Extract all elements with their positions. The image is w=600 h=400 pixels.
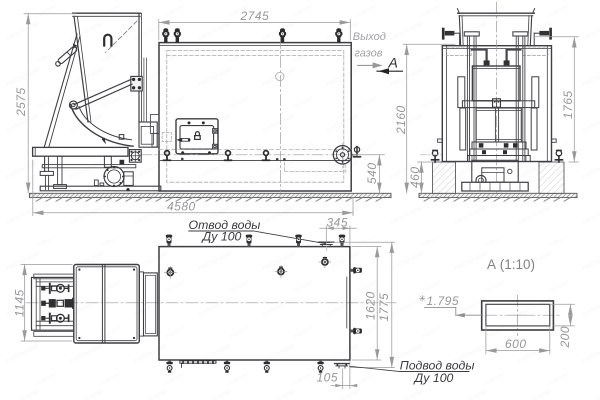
svg-text:1145: 1145 — [13, 289, 27, 317]
svg-text:✳: ✳ — [419, 294, 427, 304]
svg-text:1765: 1765 — [561, 90, 575, 119]
svg-text:газов: газов — [355, 47, 383, 59]
svg-text:345: 345 — [327, 216, 349, 230]
svg-text:Выход: Выход — [353, 31, 386, 43]
svg-text:600: 600 — [505, 337, 527, 351]
svg-text:1620: 1620 — [363, 291, 377, 320]
svg-text:Ду 100: Ду 100 — [413, 371, 454, 385]
svg-text:А (1:10): А (1:10) — [487, 257, 535, 272]
svg-text:2575: 2575 — [14, 87, 28, 117]
svg-text:540: 540 — [365, 162, 379, 184]
svg-text:1.795: 1.795 — [427, 294, 460, 308]
svg-text:105: 105 — [317, 371, 339, 385]
svg-text:2160: 2160 — [394, 105, 408, 135]
svg-text:200: 200 — [558, 326, 572, 349]
svg-text:4580: 4580 — [167, 199, 196, 213]
svg-text:2745: 2745 — [240, 9, 270, 23]
svg-text:1775: 1775 — [377, 293, 391, 322]
svg-text:460: 460 — [408, 166, 422, 188]
svg-text:Ду 100: Ду 100 — [201, 230, 242, 244]
svg-text:А: А — [388, 55, 398, 71]
